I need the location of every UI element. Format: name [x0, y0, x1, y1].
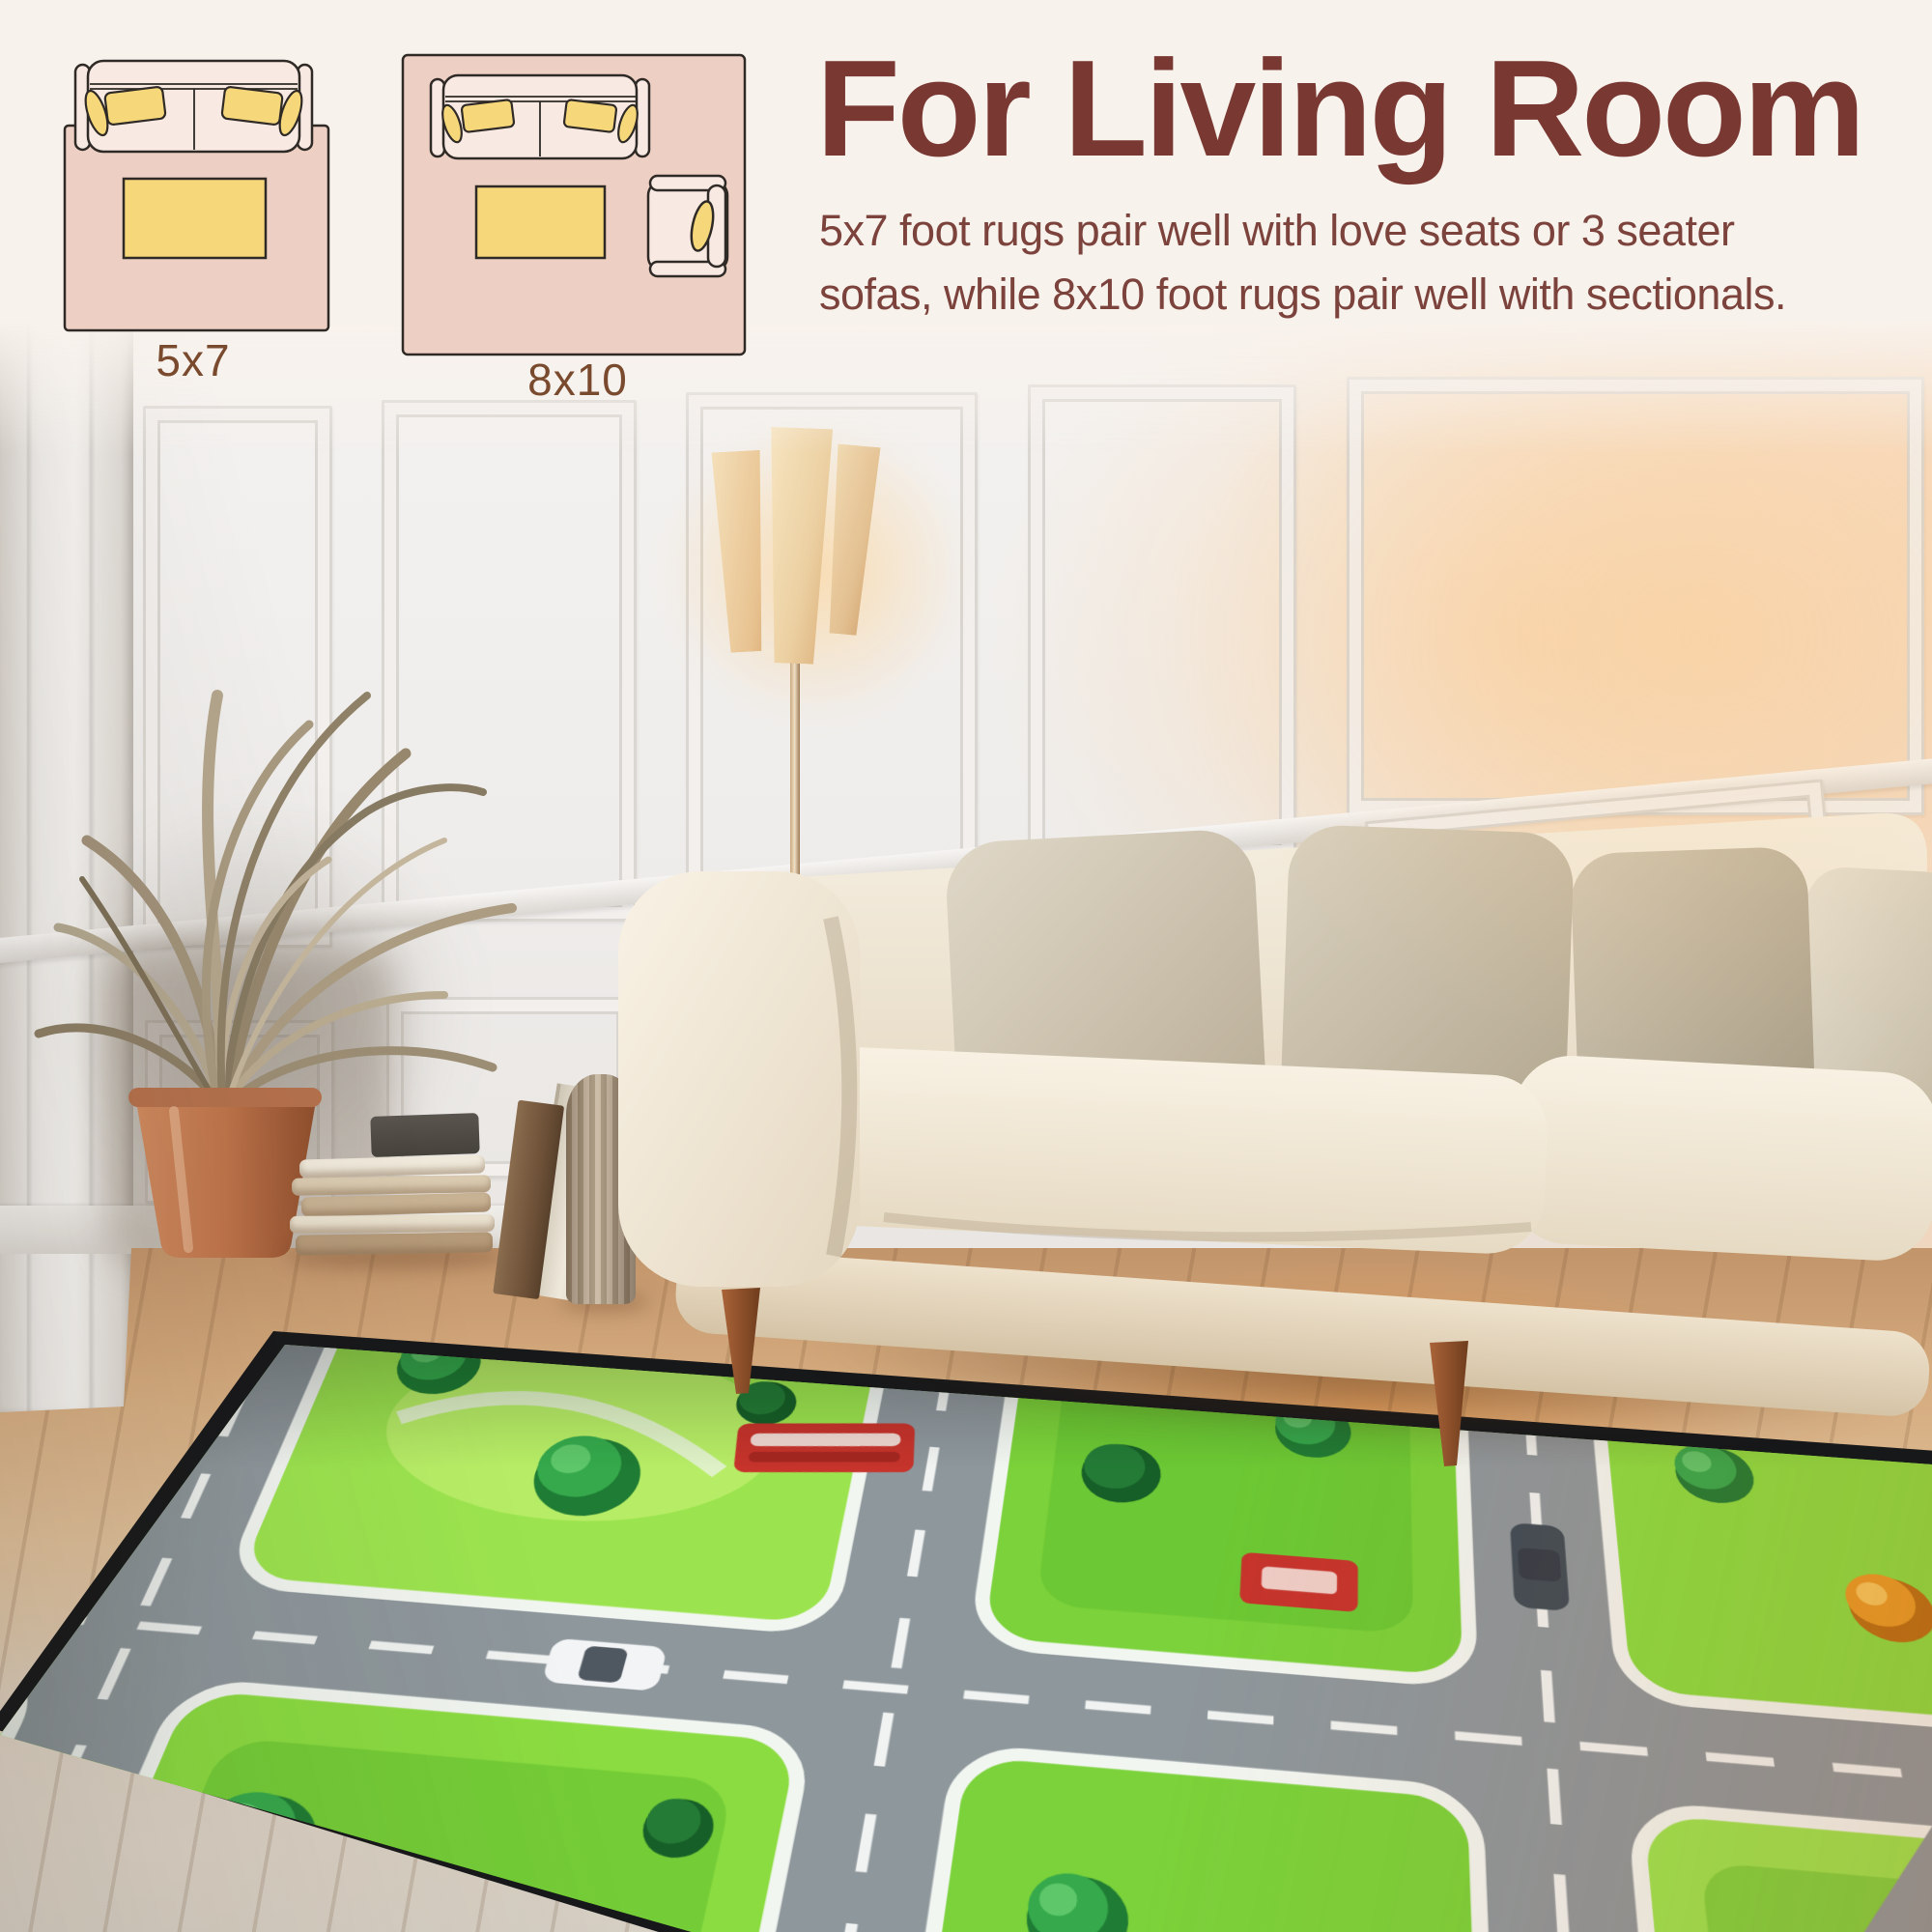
diagram-sofa — [431, 75, 649, 158]
info-banner: 5x7 — [0, 0, 1932, 454]
sofa-base — [673, 1246, 1932, 1418]
rug-size-diagram-8x10 — [399, 46, 756, 365]
cream-sofa — [594, 763, 1932, 1483]
rug-size-diagram-5x7 — [53, 53, 333, 343]
book — [290, 1214, 495, 1234]
book-stack — [288, 1113, 497, 1258]
description-text: 5x7 foot rugs pair well with love seats … — [819, 199, 1786, 327]
sofa-seat-cushions — [760, 1043, 1932, 1264]
dark-book — [370, 1113, 479, 1157]
rug-size-label-5x7: 5x7 — [53, 334, 333, 386]
product-image: 5x7 — [0, 0, 1932, 1932]
sofa-armrest — [618, 871, 860, 1287]
page-title: For Living Room — [816, 35, 1862, 183]
book — [296, 1232, 493, 1256]
diagram-coffee-table — [124, 179, 266, 258]
description-line-2: sofas, while 8x10 foot rugs pair well wi… — [819, 263, 1786, 327]
book — [301, 1192, 491, 1216]
rug-size-label-8x10: 8x10 — [399, 354, 756, 406]
diagram-coffee-table — [476, 186, 605, 258]
diagram-sofa — [75, 61, 312, 152]
palm-leaves — [39, 696, 512, 1106]
description-line-1: 5x7 foot rugs pair well with love seats … — [819, 199, 1786, 263]
diagram-armchair — [648, 176, 727, 276]
